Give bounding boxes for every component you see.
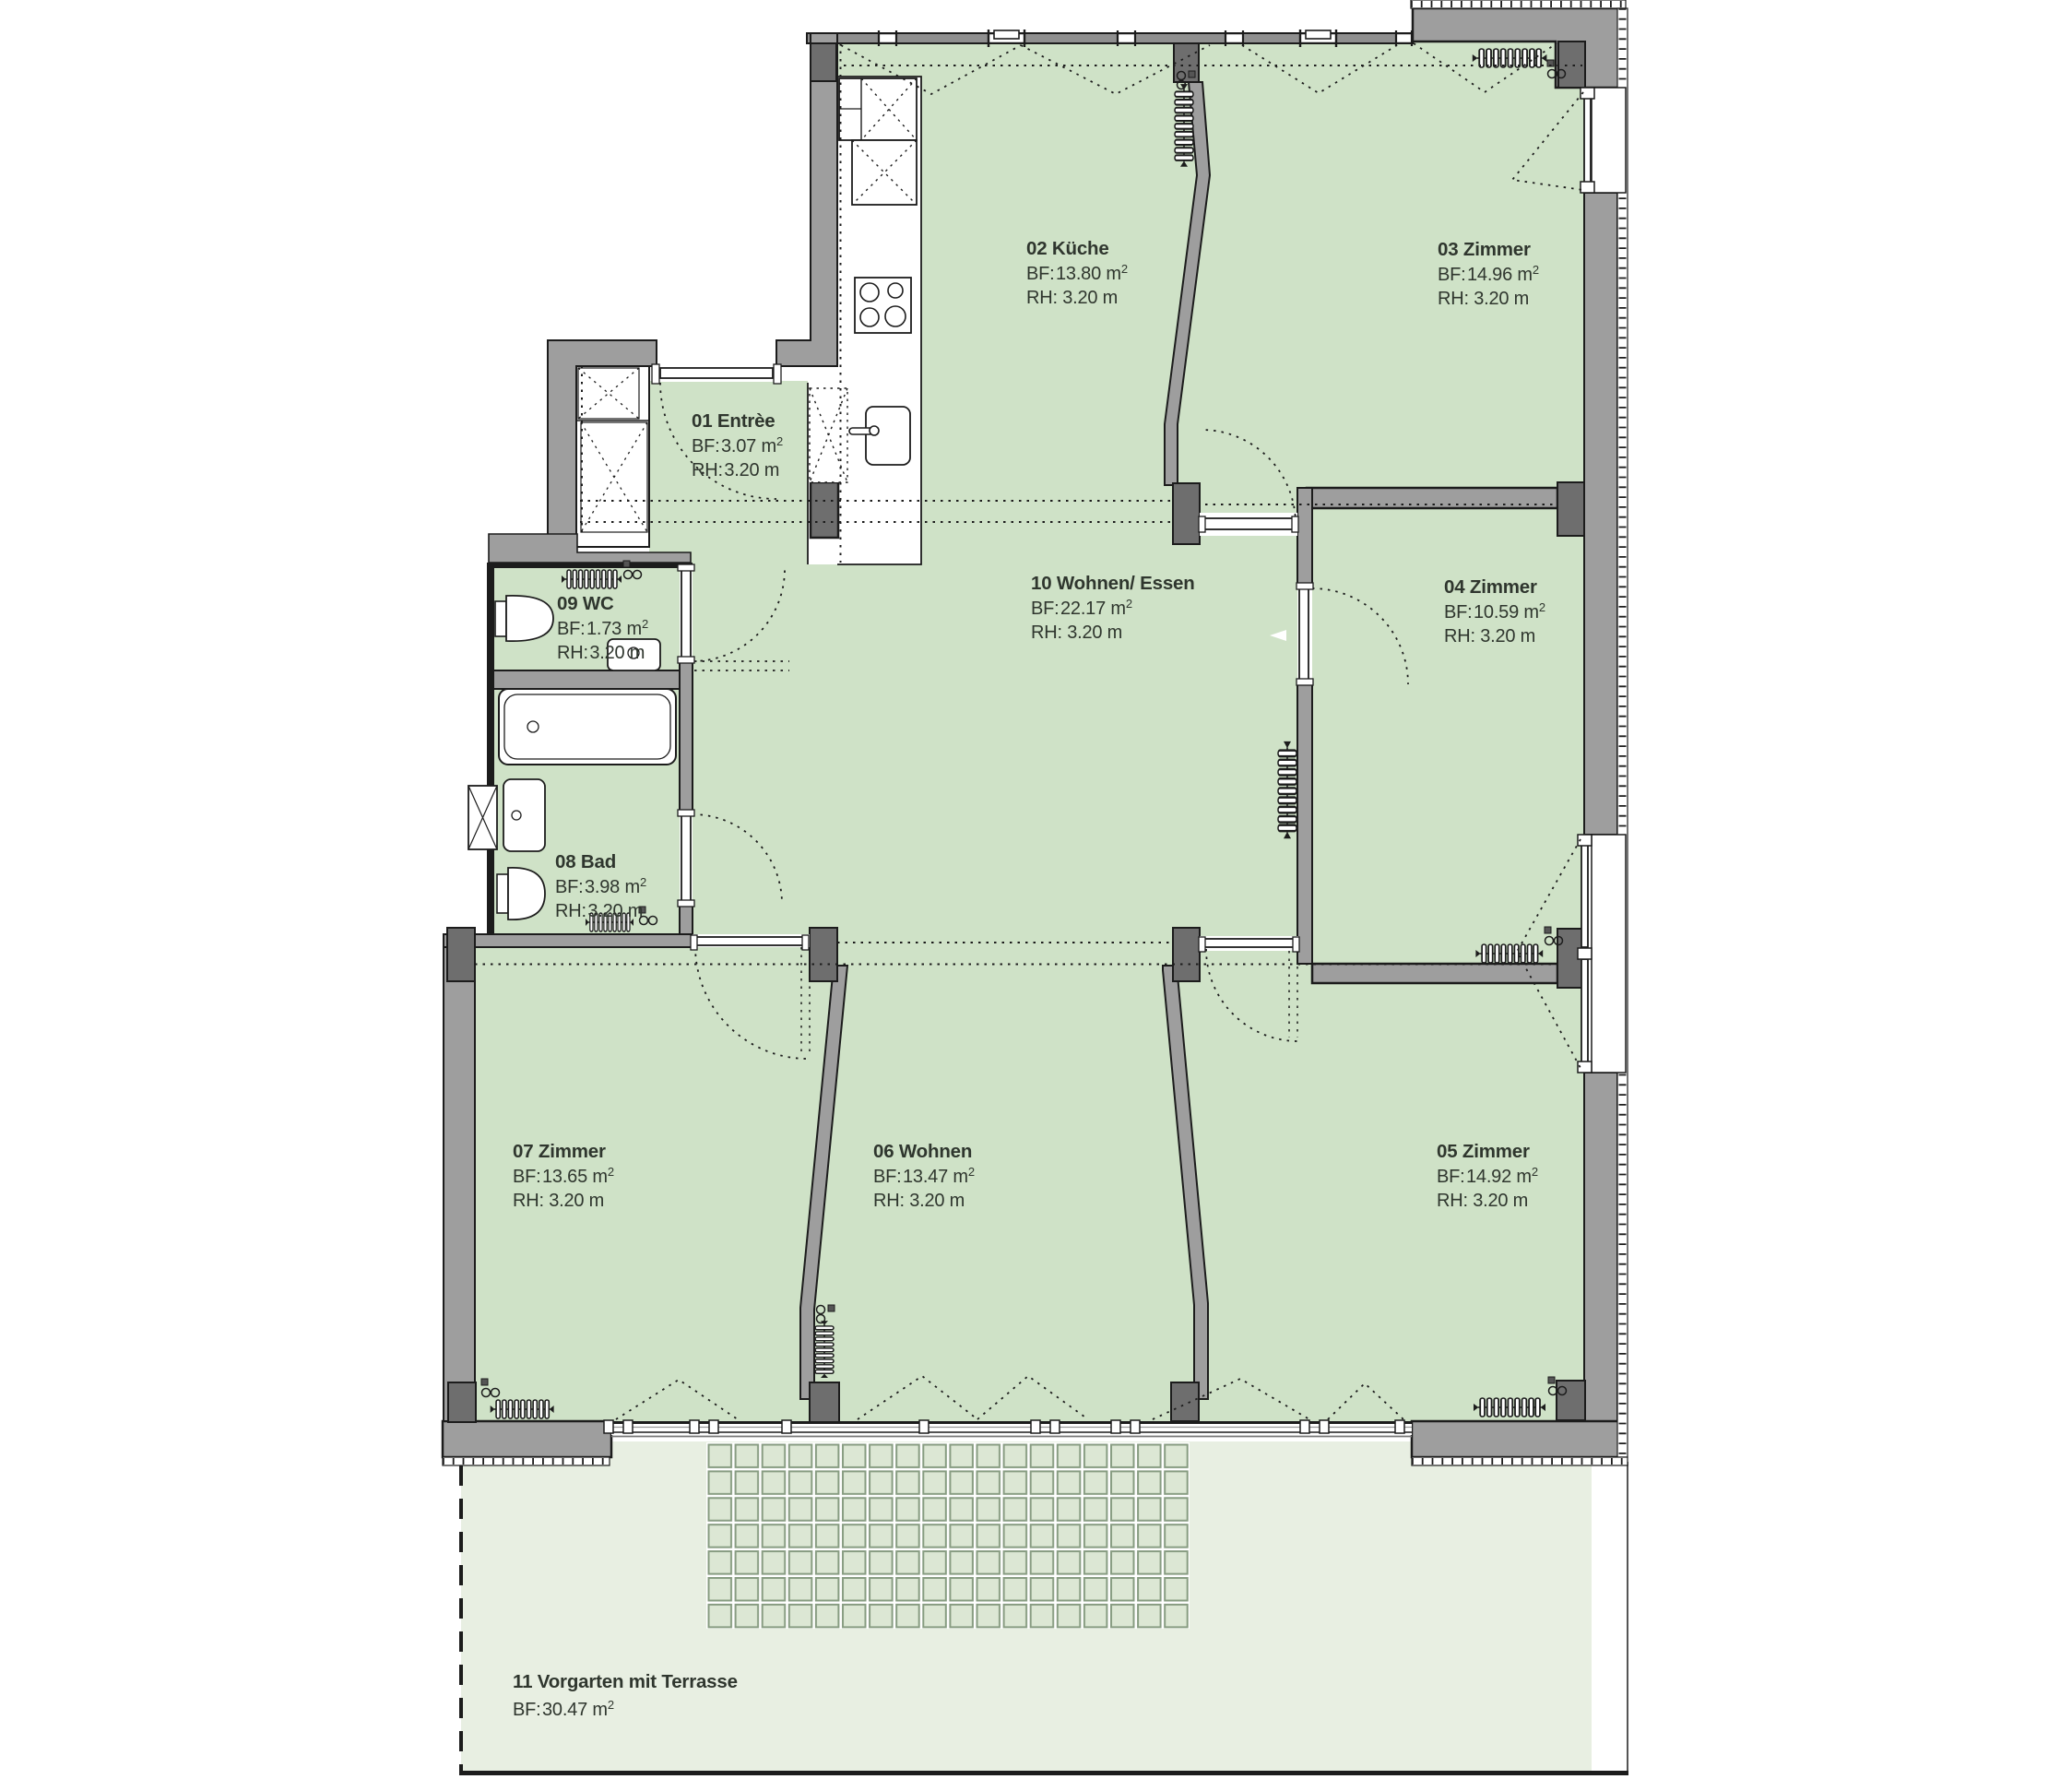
svg-text:RH: 3.20 m: RH: 3.20 m bbox=[555, 901, 643, 921]
svg-text:04 Zimmer: 04 Zimmer bbox=[1444, 576, 1537, 598]
svg-text:BF: 13.65 m2: BF: 13.65 m2 bbox=[513, 1165, 614, 1187]
svg-text:BF: 14.92 m2: BF: 14.92 m2 bbox=[1437, 1165, 1538, 1187]
svg-text:RH: 3.20 m: RH: 3.20 m bbox=[1031, 623, 1122, 643]
svg-text:BF: 22.17 m2: BF: 22.17 m2 bbox=[1031, 597, 1132, 619]
svg-text:BF: 13.47 m2: BF: 13.47 m2 bbox=[873, 1165, 975, 1187]
svg-text:09 WC: 09 WC bbox=[557, 593, 614, 614]
svg-text:RH: 3.20 m: RH: 3.20 m bbox=[692, 460, 779, 480]
svg-text:11 Vorgarten mit Terrasse: 11 Vorgarten mit Terrasse bbox=[513, 1671, 738, 1692]
svg-text:RH: 3.20 m: RH: 3.20 m bbox=[513, 1191, 604, 1211]
svg-text:BF: 30.47 m2: BF: 30.47 m2 bbox=[513, 1698, 614, 1720]
svg-text:RH: 3.20 m: RH: 3.20 m bbox=[1026, 288, 1118, 308]
svg-text:BF: 3.07 m2: BF: 3.07 m2 bbox=[692, 434, 783, 457]
svg-text:RH: 3.20 m: RH: 3.20 m bbox=[1444, 626, 1535, 646]
svg-text:01 Entrèe: 01 Entrèe bbox=[692, 410, 776, 432]
svg-text:RH: 3.20 m: RH: 3.20 m bbox=[557, 643, 645, 663]
svg-text:06 Wohnen: 06 Wohnen bbox=[873, 1141, 972, 1162]
svg-text:BF: 13.80 m2: BF: 13.80 m2 bbox=[1026, 262, 1128, 284]
svg-text:RH: 3.20 m: RH: 3.20 m bbox=[1437, 1191, 1528, 1211]
svg-text:BF: 10.59 m2: BF: 10.59 m2 bbox=[1444, 600, 1545, 623]
svg-text:10 Wohnen/ Essen: 10 Wohnen/ Essen bbox=[1031, 573, 1195, 594]
svg-text:BF: 14.96 m2: BF: 14.96 m2 bbox=[1438, 263, 1539, 285]
svg-text:08 Bad: 08 Bad bbox=[555, 851, 616, 872]
svg-text:RH: 3.20 m: RH: 3.20 m bbox=[873, 1191, 965, 1211]
svg-text:BF: 1.73 m2: BF: 1.73 m2 bbox=[557, 617, 648, 639]
svg-text:02 Küche: 02 Küche bbox=[1026, 238, 1109, 259]
svg-text:BF: 3.98 m2: BF: 3.98 m2 bbox=[555, 875, 646, 897]
svg-text:RH: 3.20 m: RH: 3.20 m bbox=[1438, 289, 1529, 309]
svg-text:03 Zimmer: 03 Zimmer bbox=[1438, 239, 1531, 260]
svg-text:07 Zimmer: 07 Zimmer bbox=[513, 1141, 606, 1162]
svg-text:05 Zimmer: 05 Zimmer bbox=[1437, 1141, 1530, 1162]
